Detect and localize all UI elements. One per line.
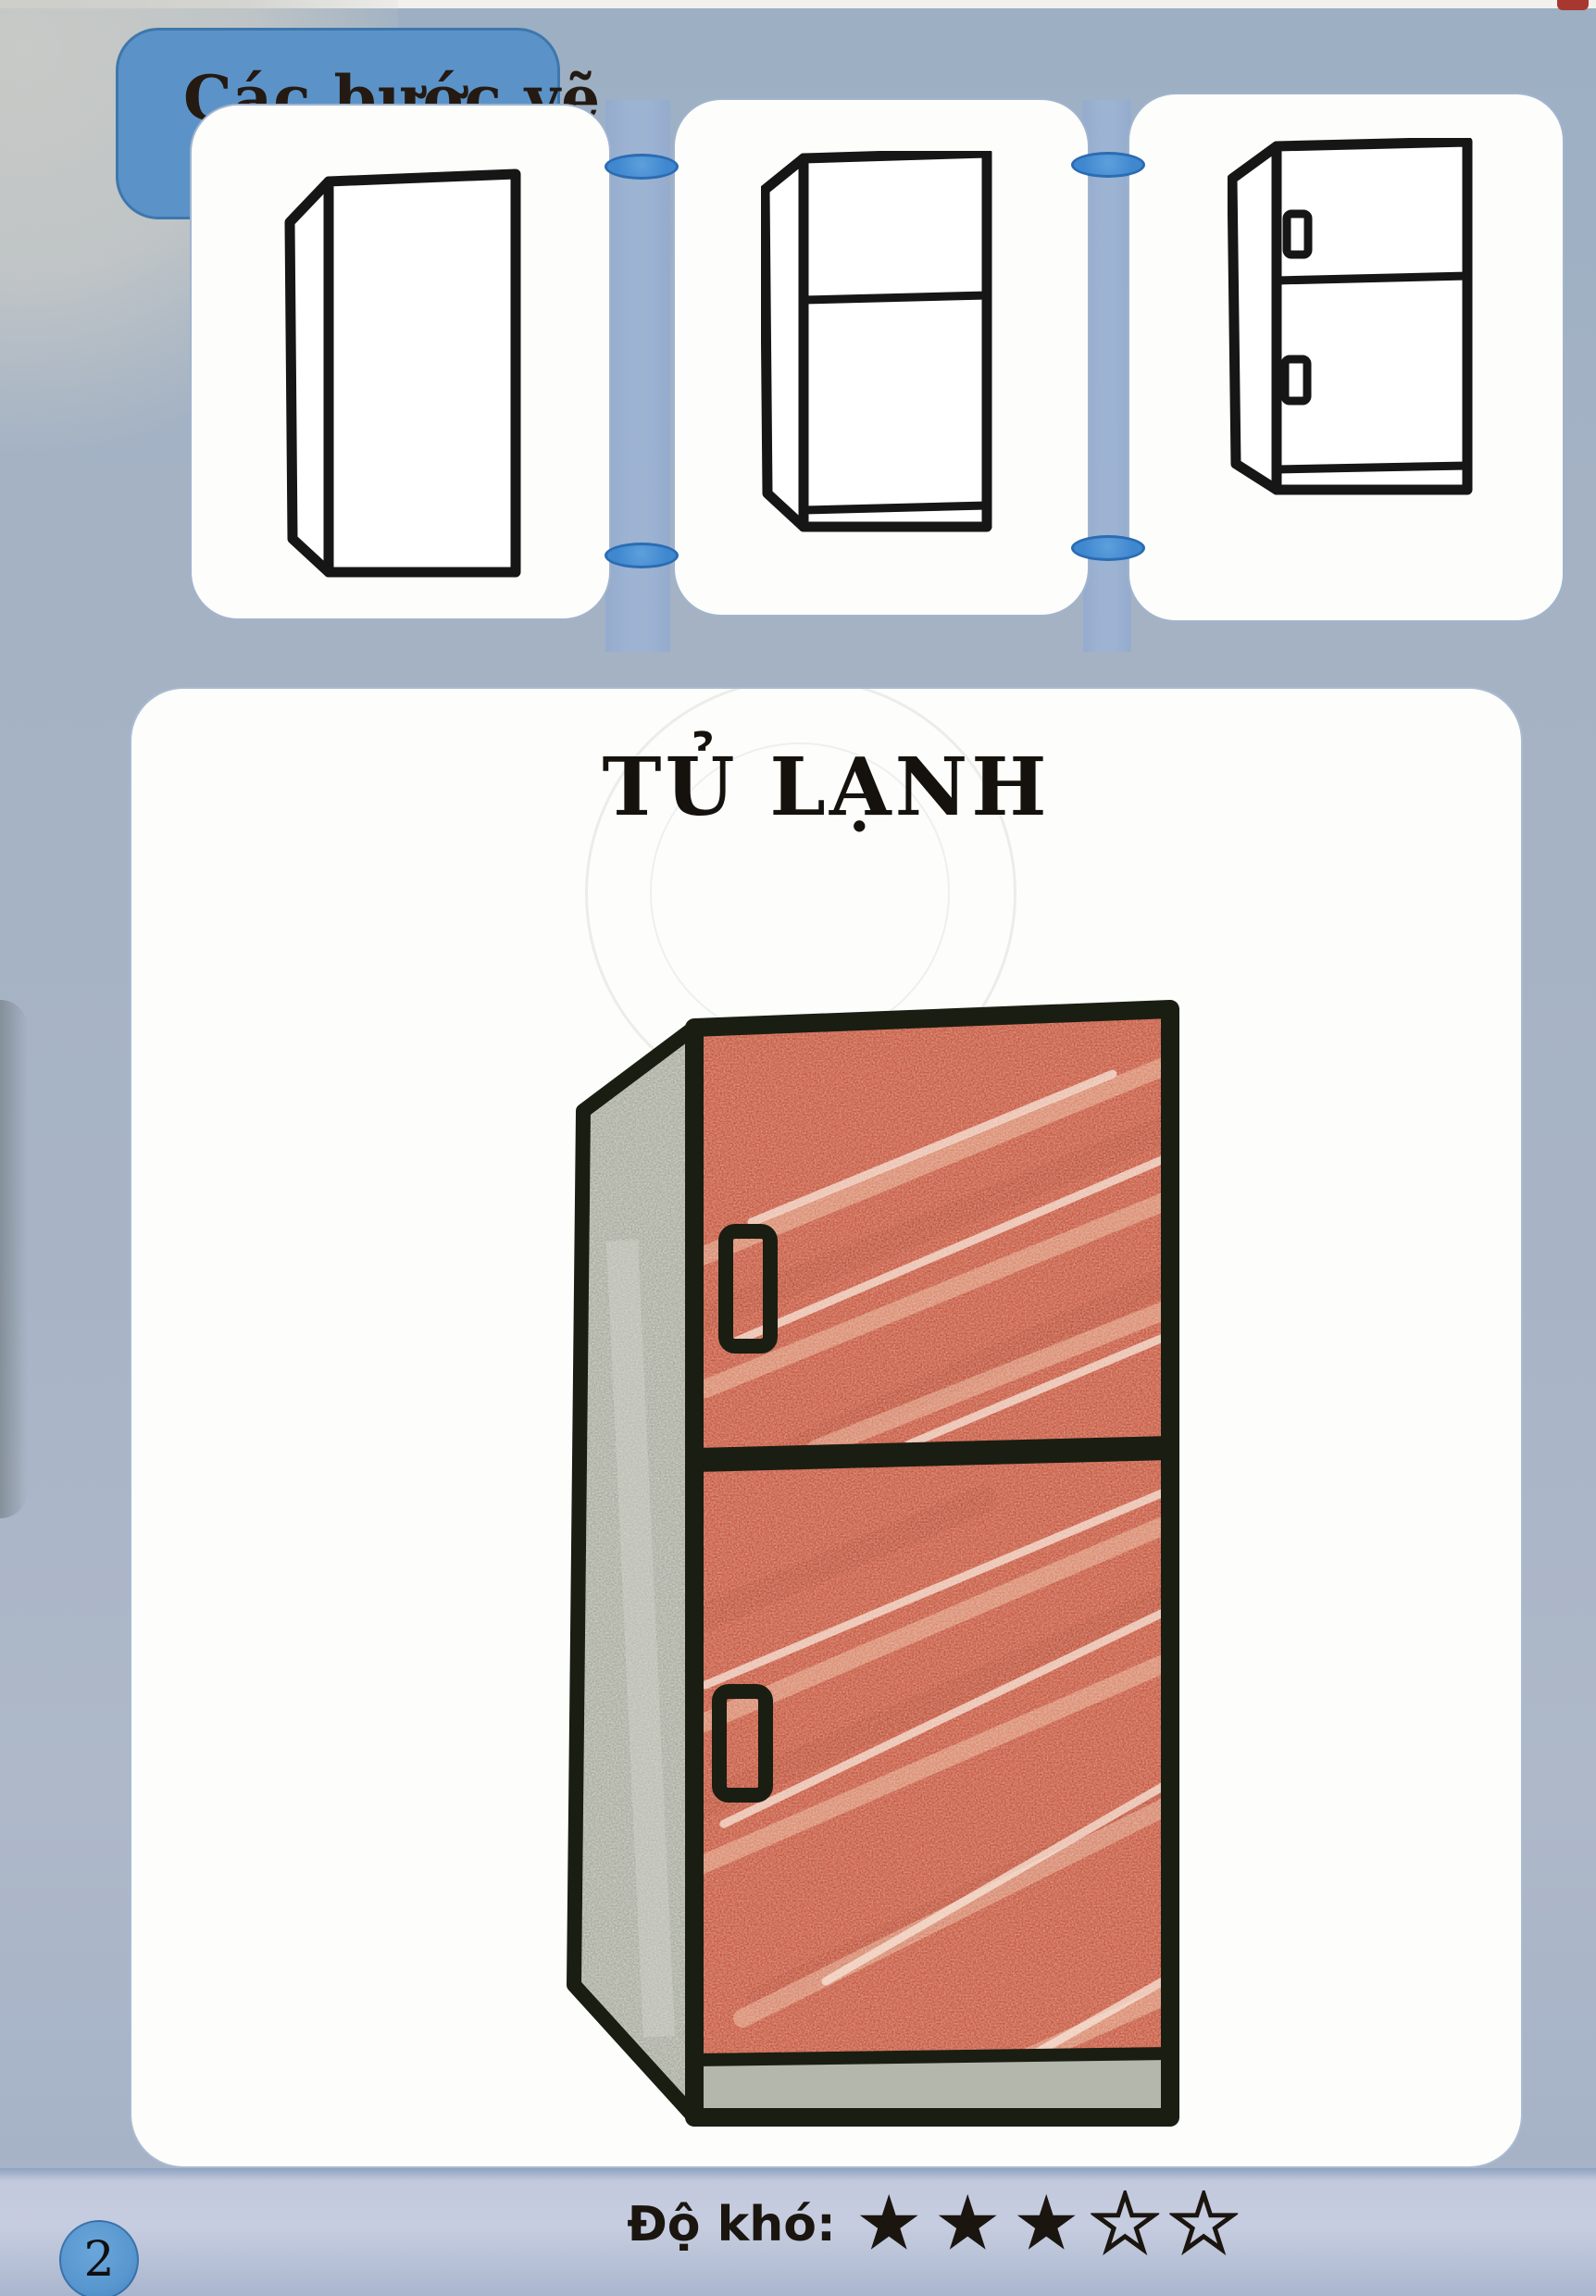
connector-band: [1083, 100, 1131, 652]
scan-left-shadow: [0, 1000, 28, 1518]
page-number-badge: 2: [59, 2220, 139, 2296]
fridge-divider: [694, 1448, 1170, 1460]
step-2-drawing: [761, 151, 992, 540]
star-empty-icon: [1169, 2190, 1238, 2259]
fridge-base-line: [804, 505, 987, 510]
book-page: Các bước vẽ: [0, 0, 1596, 2296]
step-panel-3: [1128, 93, 1565, 622]
star-filled-icon: [1012, 2190, 1080, 2259]
door-texture: [631, 995, 1187, 2134]
fridge-drawing: [520, 944, 1187, 2139]
fridge-front-face: [329, 174, 516, 572]
step-3-drawing: [1228, 138, 1479, 504]
difficulty-row: Độ khó:: [627, 2190, 1238, 2259]
difficulty-label: Độ khó:: [627, 2197, 836, 2252]
fridge-base-line: [694, 2053, 1170, 2060]
connector-band: [605, 100, 670, 652]
connector-dot: [1071, 152, 1145, 178]
star-filled-icon: [854, 2190, 923, 2259]
fridge-front-face: [804, 153, 987, 527]
fridge-side-face: [290, 181, 329, 572]
fridge-front-face: [1277, 142, 1467, 490]
fridge-base-line: [1277, 466, 1467, 469]
star-filled-icon: [933, 2190, 1002, 2259]
scan-corner-mark: [1557, 0, 1589, 10]
step-1-drawing: [284, 161, 525, 587]
connector-dot: [1071, 535, 1145, 561]
page-number: 2: [83, 2232, 114, 2288]
fridge-side-face: [1232, 146, 1277, 490]
fridge-divider: [1277, 276, 1467, 281]
difficulty-stars: [854, 2190, 1238, 2259]
fridge-divider: [804, 295, 987, 300]
connector-dot: [605, 154, 679, 180]
connector-dot: [605, 543, 679, 568]
page-title: TỦ LẠNH: [131, 741, 1521, 834]
step-panel-2: [673, 98, 1090, 617]
star-empty-icon: [1091, 2190, 1159, 2259]
step-panel-1: [190, 104, 611, 620]
main-panel: TỦ LẠNH: [130, 687, 1523, 2168]
fridge-side-face: [765, 158, 804, 527]
